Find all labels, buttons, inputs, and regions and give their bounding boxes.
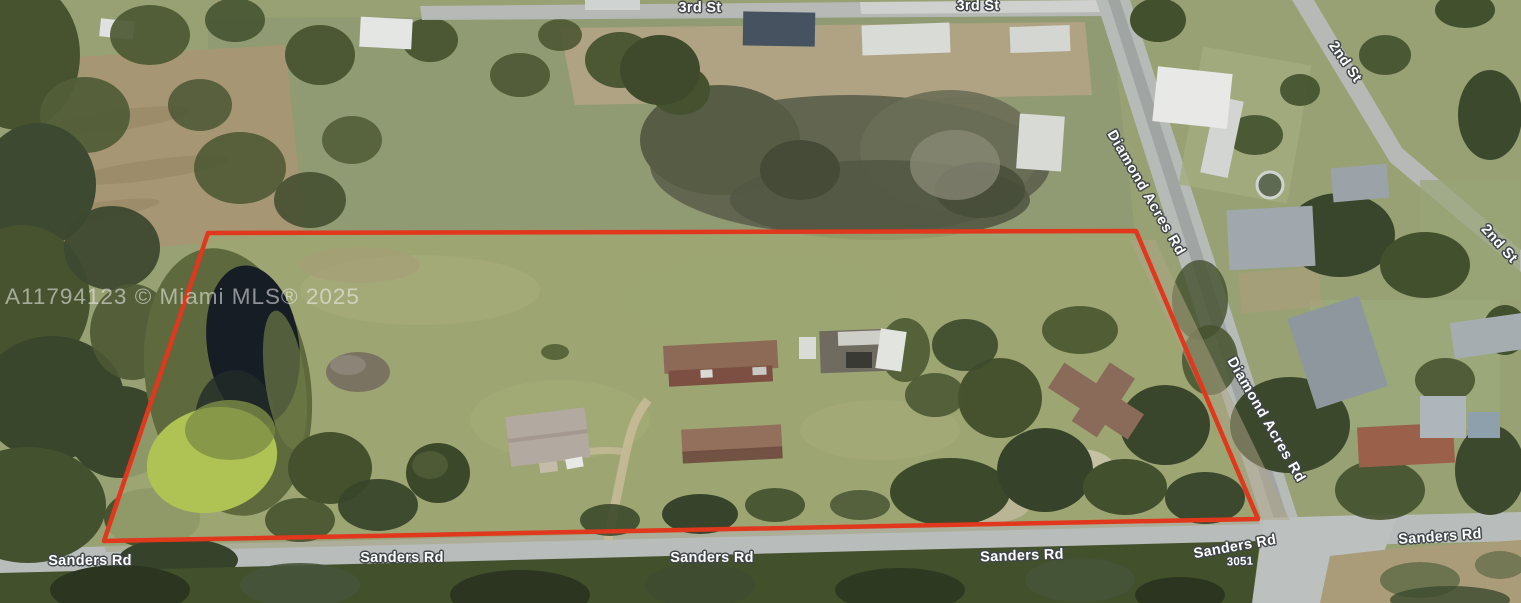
tree [285,25,355,85]
tree [110,5,190,65]
tree [490,53,550,97]
tree [905,373,965,417]
pool [1257,172,1283,198]
bush [541,344,569,360]
dirt-patch [300,247,420,283]
mls-watermark: A11794123 © Miami MLS® 2025 [5,284,360,310]
tree [932,319,998,371]
tree [1359,35,1411,75]
road-label-3rd-st-a: 3rd St [679,0,722,16]
debris-pile [330,355,366,375]
building-shed [799,337,816,359]
tree [322,116,382,164]
dirt-patch [1238,267,1321,314]
road-label-sanders-b: Sanders Rd [360,550,444,566]
building-window [700,369,712,378]
tree [168,79,232,131]
tree [205,0,265,42]
road-label-sanders-a: Sanders Rd [48,553,132,569]
building-shed [1016,114,1065,172]
barn-opening [846,352,872,368]
tree [997,428,1093,512]
tree [1280,74,1320,106]
tree [620,35,700,105]
building-window [752,367,766,376]
building-house [1226,206,1315,270]
tree [1458,70,1521,160]
tree [538,19,582,51]
road-label-sanders-d: Sanders Rd [980,547,1064,566]
building-main-house [663,340,779,387]
tree [64,206,160,290]
house-number-label: 3051 [1227,556,1254,569]
tree [1335,460,1425,520]
building-house [1152,66,1232,129]
building-house [862,22,951,55]
pond-algae-blend [185,400,275,460]
tree [1083,459,1167,515]
building-house [359,17,412,50]
tree [1165,472,1245,524]
road-label-3rd-st-b: 3rd St [957,0,1000,14]
building-long-house [681,424,783,463]
tree [890,458,1010,526]
building-house [1010,25,1071,53]
road-label-sanders-c: Sanders Rd [670,550,754,566]
building-trailer [1420,396,1466,438]
building-shed [875,328,906,371]
tree [194,132,286,204]
tree [830,490,890,520]
building-dark-roof-house [743,11,816,46]
building-house [1331,164,1390,203]
tree [1415,358,1475,402]
tree [745,488,805,522]
tree [1025,558,1135,602]
tree [1042,306,1118,354]
tree-highlight [412,451,448,479]
building-house [585,0,640,10]
scrub-blob [910,130,1000,200]
tree [1130,0,1186,42]
tree [338,479,418,531]
tree [274,172,346,228]
parcel-interior [104,231,1258,542]
scrub-blob [760,140,840,200]
aerial-map-view: 3rd St 3rd St 2nd St 2nd St Diamond Acre… [0,0,1521,603]
tree [1380,232,1470,298]
building-shed [1468,412,1500,438]
